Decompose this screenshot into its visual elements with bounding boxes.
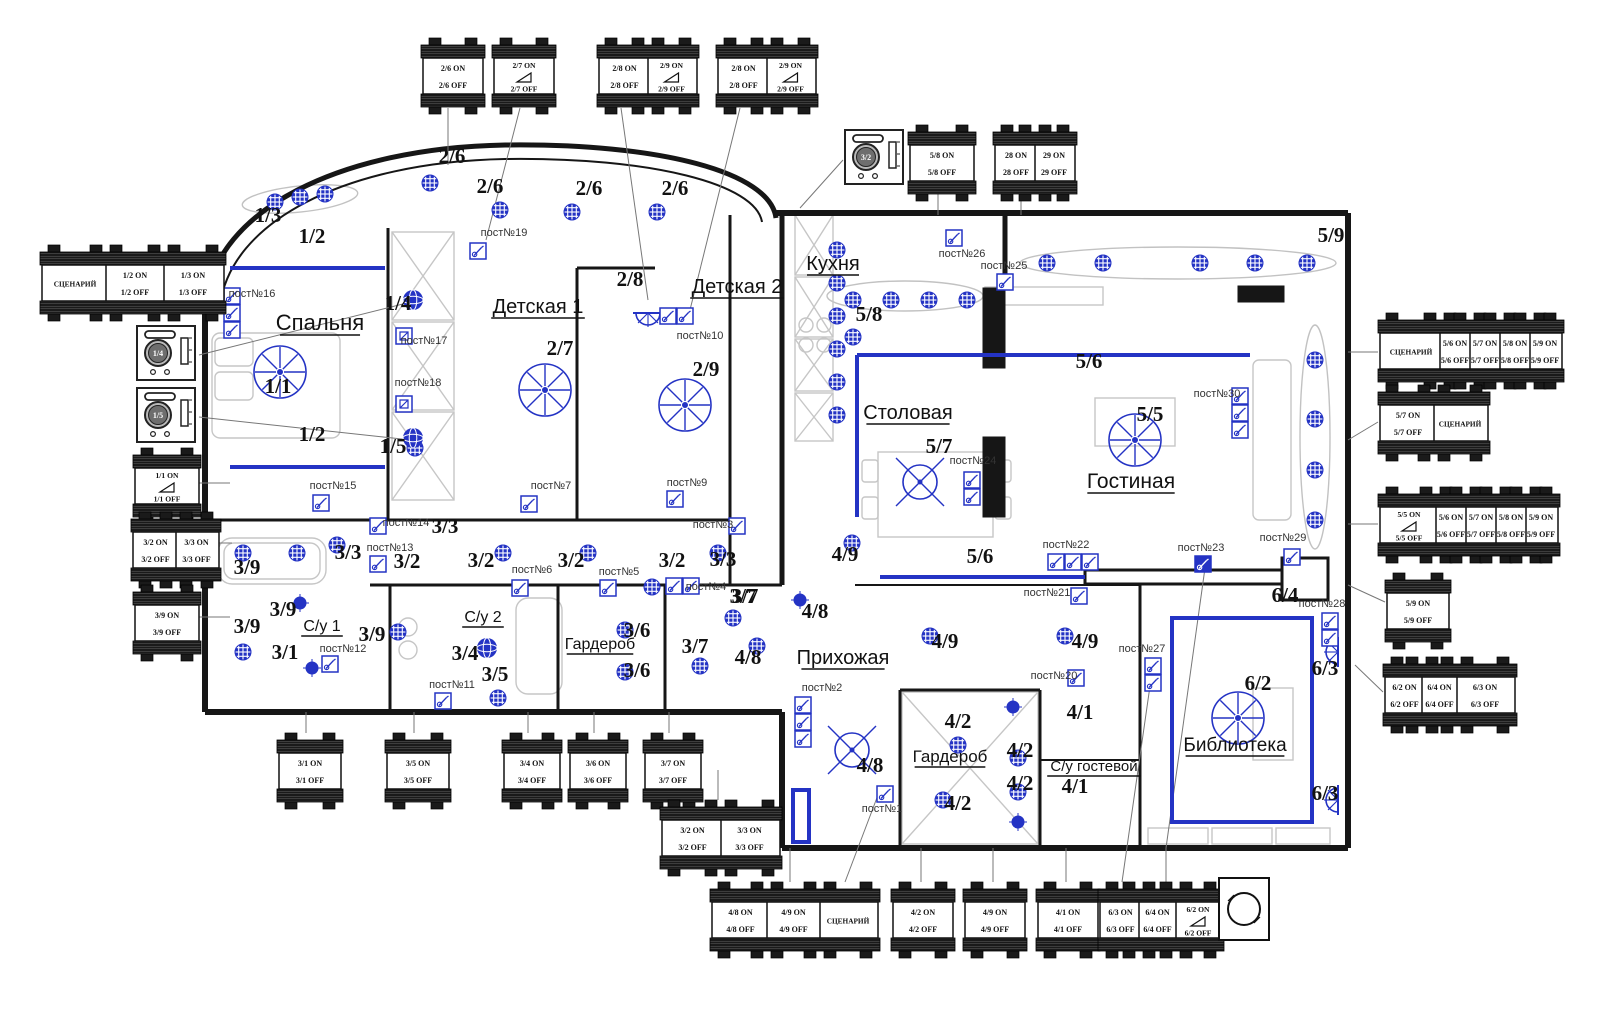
block-bar xyxy=(568,789,628,802)
point-light-icon xyxy=(303,659,321,677)
kitchen-counter-cross xyxy=(795,277,833,337)
gang-label: 4/8 OFF xyxy=(726,925,754,934)
circuit-label: 6/4 xyxy=(1272,583,1299,607)
post-label: пост№5 xyxy=(599,566,640,578)
circuit-label: 6/2 xyxy=(1245,671,1272,695)
switch-block: 2/6 ON2/6 OFF xyxy=(421,38,485,114)
circuit-label: 3/6 xyxy=(624,618,651,642)
bathtub-2 xyxy=(516,598,562,694)
post-label: пост№28 xyxy=(1299,598,1346,610)
gang-label: 6/3 OFF xyxy=(1106,925,1134,934)
spot-light-icon xyxy=(317,186,333,202)
post-label: пост№2 xyxy=(802,682,843,694)
leader-line xyxy=(1348,585,1385,602)
switch-post-symbol xyxy=(1284,549,1300,565)
gang-label: 5/8 OFF xyxy=(1501,356,1529,365)
stove-burner xyxy=(799,338,813,352)
ceiling-light-oval xyxy=(1020,247,1336,279)
sink xyxy=(399,641,417,659)
leader-line xyxy=(1348,422,1378,440)
spot-light-icon xyxy=(829,374,845,390)
gang-label: 4/9 ON xyxy=(983,908,1007,917)
spot-light-icon xyxy=(829,407,845,423)
screw xyxy=(859,174,864,179)
block-bar xyxy=(385,740,451,753)
device-slot xyxy=(145,331,175,338)
leader-line xyxy=(1355,665,1383,692)
switch-block: 3/9 ON3/9 OFF xyxy=(133,585,201,661)
leader-lines xyxy=(193,108,1385,882)
wall-pier xyxy=(983,437,1005,517)
block-bar xyxy=(1098,938,1224,951)
block-bar xyxy=(502,740,562,753)
switch-block: 2/7 ON2/7 OFF xyxy=(492,38,556,114)
device-slot xyxy=(145,393,175,400)
room-label: С/у 1 xyxy=(303,618,340,635)
gang-label: 3/6 ON xyxy=(586,759,610,768)
room-label: С/у 2 xyxy=(464,609,501,626)
gang-label: 5/9 ON xyxy=(1533,339,1557,348)
circuit-label: 3/2 xyxy=(468,548,495,572)
gang-label: 28 ON xyxy=(1005,151,1027,160)
gang-label: СЦЕНАРИЙ xyxy=(1390,348,1433,357)
fan-device-symbol xyxy=(1219,878,1269,940)
switch-post-symbol xyxy=(997,274,1013,290)
spot-light-icon xyxy=(1307,512,1323,528)
gang-label: 5/8 ON xyxy=(930,151,954,160)
gang-label: 1/2 OFF xyxy=(121,288,149,297)
gang-label: 5/6 ON xyxy=(1443,339,1467,348)
dimmer-knob-label: 1/4 xyxy=(153,349,163,358)
spot-light-icon xyxy=(1307,352,1323,368)
chair xyxy=(862,460,878,482)
post-label: пост№19 xyxy=(481,227,528,239)
switch-block: СЦЕНАРИЙ5/6 ON5/6 OFF5/7 ON5/7 OFF5/8 ON… xyxy=(1378,313,1564,389)
gang-label: 6/3 OFF xyxy=(1471,700,1499,709)
circuit-label: 6/3 xyxy=(1312,656,1339,680)
room-label: Детская 1 xyxy=(493,296,584,318)
spot-light-icon xyxy=(564,204,580,220)
gang-label: 2/9 ON xyxy=(660,61,684,70)
spot-light-icon xyxy=(235,644,251,660)
circuit-label: 3/3 xyxy=(432,514,459,538)
rotary-dimmer-device: 1/5 xyxy=(137,388,195,442)
spot-light-icon xyxy=(390,624,406,640)
circuit-label: 4/9 xyxy=(1072,629,1099,653)
switch-block: 6/3 ON6/3 OFF6/4 ON6/4 OFF6/2 ON6/2 OFF xyxy=(1098,882,1224,958)
spot-light-icon xyxy=(829,341,845,357)
block-bar xyxy=(716,45,818,58)
circuit-label: 2/6 xyxy=(477,174,504,198)
tv-wall xyxy=(1085,570,1282,584)
switch-block: 3/1 ON3/1 OFF xyxy=(277,733,343,809)
block-bar xyxy=(568,740,628,753)
rotary-dimmer-device: 1/4 xyxy=(137,326,195,380)
block-bar xyxy=(643,740,703,753)
gang-label: 2/9 ON xyxy=(779,61,803,70)
circuit-label: 2/6 xyxy=(662,176,689,200)
spot-light-icon xyxy=(1192,255,1208,271)
switch-block: 3/2 ON3/2 OFF3/3 ON3/3 OFF xyxy=(131,512,221,588)
switch-block: 28 ON28 OFF29 ON29 OFF xyxy=(993,125,1077,201)
circuit-label: 4/2 xyxy=(1007,738,1034,762)
gang-label: 6/2 OFF xyxy=(1185,929,1212,938)
post-label: пост№15 xyxy=(310,480,357,492)
block-bar xyxy=(891,889,955,902)
gang-label: 3/3 OFF xyxy=(182,555,210,564)
post-label: пост№11 xyxy=(429,679,475,691)
circuit-label: 4/1 xyxy=(1062,774,1089,798)
switch-post-symbol xyxy=(1195,556,1211,572)
gang-label: 28 OFF xyxy=(1003,168,1029,177)
gang-label: СЦЕНАРИЙ xyxy=(1439,420,1482,429)
switch-block: 3/2 ON3/2 OFF3/3 ON3/3 OFF xyxy=(660,800,782,876)
block-bar xyxy=(1383,713,1517,726)
spot-light-icon xyxy=(422,175,438,191)
switch-block: 4/1 ON4/1 OFF xyxy=(1036,882,1100,958)
switch-blocks-layer: 2/6 ON2/6 OFF2/7 ON2/7 OFF2/8 ON2/8 OFF2… xyxy=(40,38,1564,958)
switch-post-symbol xyxy=(1322,613,1338,646)
gang-label: 29 ON xyxy=(1043,151,1065,160)
gang-label: 4/8 ON xyxy=(728,908,752,917)
post-label: пост№6 xyxy=(512,564,553,576)
block-bar xyxy=(133,455,201,468)
circuit-label: 3/7 xyxy=(730,584,757,608)
gang-label: 6/4 ON xyxy=(1145,908,1169,917)
spot-light-icon xyxy=(921,292,937,308)
bookshelf xyxy=(1276,828,1330,844)
gang-label: 2/8 ON xyxy=(612,64,636,73)
gang-label: 5/6 OFF xyxy=(1441,356,1469,365)
rotary-dimmer-device: 3/2 xyxy=(845,130,903,184)
spot-light-icon xyxy=(1307,462,1323,478)
gang-label: 5/8 OFF xyxy=(1497,530,1525,539)
switch-post-symbol xyxy=(877,786,893,802)
screw xyxy=(151,370,156,375)
circuit-label: 4/9 xyxy=(832,542,859,566)
screw xyxy=(165,432,170,437)
gang-label: 4/9 OFF xyxy=(981,925,1009,934)
gang-label: 6/4 ON xyxy=(1427,683,1451,692)
circuit-label: 2/9 xyxy=(693,357,720,381)
gang-label: 6/3 ON xyxy=(1473,683,1497,692)
block-bar xyxy=(421,45,485,58)
switch-block: 3/5 ON3/5 OFF xyxy=(385,733,451,809)
post-label: пост№1 xyxy=(862,803,903,815)
spot-light-icon xyxy=(289,545,305,561)
circuit-label: 5/7 xyxy=(926,434,953,458)
gang-label: 4/1 OFF xyxy=(1054,925,1082,934)
screw xyxy=(151,432,156,437)
post-label: пост№3 xyxy=(693,519,734,531)
circuit-label: 4/8 xyxy=(802,599,829,623)
switch-post-symbol xyxy=(313,495,329,511)
gang-label: 5/5 ON xyxy=(1398,510,1422,519)
bookshelf xyxy=(1148,828,1208,844)
switch-post-symbol xyxy=(435,693,451,709)
spot-light-icon xyxy=(490,690,506,706)
block-bar xyxy=(963,889,1027,902)
circuit-label: 3/9 xyxy=(234,614,261,638)
switch-post-symbol xyxy=(322,656,338,672)
spot-light-icon xyxy=(883,292,899,308)
block-bar xyxy=(660,807,782,820)
leader-line xyxy=(800,160,843,208)
gang-label: 2/9 OFF xyxy=(658,85,685,94)
circuit-label: 3/9 xyxy=(270,597,297,621)
arc-wall-outer xyxy=(206,145,776,302)
switch-post-symbol xyxy=(795,697,811,747)
block-bar xyxy=(1383,664,1517,677)
post-label: пост№13 xyxy=(367,542,414,554)
switch-block: СЦЕНАРИЙ1/2 ON1/2 OFF1/3 ON1/3 OFF xyxy=(40,245,226,321)
spot-light-icon xyxy=(829,275,845,291)
post-label: пост№14 xyxy=(383,517,430,529)
kitchen-counter-cross xyxy=(795,339,833,391)
gang-label: 5/7 OFF xyxy=(1471,356,1499,365)
circuit-label: 6/3 xyxy=(1312,781,1339,805)
block-bar xyxy=(502,789,562,802)
switch-block: 6/2 ON6/2 OFF6/4 ON6/4 OFF6/3 ON6/3 OFF xyxy=(1383,657,1517,733)
spot-light-icon xyxy=(1247,255,1263,271)
switch-post-symbol xyxy=(521,496,537,512)
post-label: пост№4 xyxy=(686,581,727,593)
spot-light-icon xyxy=(292,189,308,205)
gang-label: СЦЕНАРИЙ xyxy=(827,917,870,926)
block-bar xyxy=(492,45,556,58)
block-bar xyxy=(710,938,880,951)
gang-label: 6/2 ON xyxy=(1187,905,1211,914)
gang-label: 3/2 ON xyxy=(143,538,167,547)
room-label: Прихожая xyxy=(797,647,890,669)
gang-label: 5/7 OFF xyxy=(1467,530,1495,539)
switch-post-symbol xyxy=(667,491,683,507)
block-bar xyxy=(891,938,955,951)
gang-label: 4/9 OFF xyxy=(779,925,807,934)
gang-label: 3/4 ON xyxy=(520,759,544,768)
gang-label: 2/7 OFF xyxy=(511,85,538,94)
spot-light-icon xyxy=(1299,255,1315,271)
spot-light-icon xyxy=(845,329,861,345)
switch-block: 5/9 ON5/9 OFF xyxy=(1385,573,1451,649)
circuit-label: 5/6 xyxy=(967,544,994,568)
circuit-label: 4/9 xyxy=(932,629,959,653)
block-bar xyxy=(1098,889,1224,902)
wall-pier xyxy=(1238,286,1284,302)
block-bar xyxy=(716,94,818,107)
block-bar xyxy=(277,740,343,753)
switch-block: 2/8 ON2/8 OFF2/9 ON2/9 OFF xyxy=(716,38,818,114)
circuit-label: 5/9 xyxy=(1318,223,1345,247)
gang-label: 5/7 OFF xyxy=(1394,428,1422,437)
gang-label: 3/1 OFF xyxy=(296,776,324,785)
gang-label: 3/4 OFF xyxy=(518,776,546,785)
block-bar xyxy=(1385,580,1451,593)
gang-label: 3/5 OFF xyxy=(404,776,432,785)
switch-post-symbol xyxy=(964,472,980,505)
room-label: Спальня xyxy=(276,310,364,335)
block-bar xyxy=(133,641,201,654)
block-bar xyxy=(1378,543,1560,556)
block-bar xyxy=(993,181,1077,194)
block-bar xyxy=(908,181,976,194)
block-bar xyxy=(492,94,556,107)
switch-block: 2/8 ON2/8 OFF2/9 ON2/9 OFF xyxy=(597,38,699,114)
gang-label: 2/9 OFF xyxy=(777,85,804,94)
block-bar xyxy=(1378,441,1490,454)
circuit-label: 4/2 xyxy=(1007,771,1034,795)
switch-post-symbol xyxy=(512,580,528,596)
post-label: пост№10 xyxy=(677,330,724,342)
dimmer-knob-label: 3/2 xyxy=(861,153,871,162)
switch-post-symbol xyxy=(1048,554,1098,570)
block-bar xyxy=(1378,392,1490,405)
wall-light-icon xyxy=(633,313,663,327)
gang-label: 1/3 ON xyxy=(181,271,205,280)
switch-post-symbol xyxy=(600,580,616,596)
gang-label: 5/7 ON xyxy=(1469,513,1493,522)
gang-label: 3/1 ON xyxy=(298,759,322,768)
block-bar xyxy=(1385,629,1451,642)
switch-block: 3/4 ON3/4 OFF xyxy=(502,733,562,809)
gang-label: 5/7 ON xyxy=(1396,411,1420,420)
block-bar xyxy=(993,132,1077,145)
screw xyxy=(873,174,878,179)
chandelier-icon xyxy=(659,379,711,431)
circuit-label: 3/9 xyxy=(234,555,261,579)
block-bar xyxy=(908,132,976,145)
circuit-label: 3/2 xyxy=(558,548,585,572)
switch-block: 5/5 ON5/5 OFF5/6 ON5/6 OFF5/7 ON5/7 OFF5… xyxy=(1378,487,1560,563)
block-bar xyxy=(710,889,880,902)
block-bar xyxy=(421,94,485,107)
post-label: пост№25 xyxy=(981,260,1028,272)
gang-label: 2/6 OFF xyxy=(439,81,467,90)
room-label: Библиотека xyxy=(1183,735,1287,756)
gang-label: 5/8 OFF xyxy=(928,168,956,177)
block-bar xyxy=(1036,938,1100,951)
circuit-label: 4/1 xyxy=(1067,700,1094,724)
gang-label: 1/1 ON xyxy=(156,471,180,480)
post-label: пост№7 xyxy=(531,480,572,492)
circuit-label: 4/8 xyxy=(735,645,762,669)
gang-label: 3/3 ON xyxy=(737,826,761,835)
spot-light-icon xyxy=(649,204,665,220)
post-label: пост№18 xyxy=(395,377,442,389)
gang-label: 6/4 OFF xyxy=(1143,925,1171,934)
circuit-label: 1/4 xyxy=(385,291,412,315)
switch-post-symbol xyxy=(370,556,386,572)
spot-light-icon xyxy=(1095,255,1111,271)
gang-label: 6/3 ON xyxy=(1108,908,1132,917)
switch-block: 5/8 ON5/8 OFF xyxy=(908,125,976,201)
gang-label: 29 OFF xyxy=(1041,168,1067,177)
circuit-label: 4/8 xyxy=(857,753,884,777)
gang-label: 4/2 ON xyxy=(911,908,935,917)
block-bar xyxy=(385,789,451,802)
stove-burner xyxy=(817,318,831,332)
gang-label: 3/2 OFF xyxy=(141,555,169,564)
circuit-label: 1/2 xyxy=(299,224,326,248)
block-bar xyxy=(1378,369,1564,382)
switch-block: 4/9 ON4/9 OFF xyxy=(963,882,1027,958)
gang-label: 2/8 OFF xyxy=(610,81,638,90)
circuit-label: 3/2 xyxy=(659,548,686,572)
gang-label: 5/6 ON xyxy=(1439,513,1463,522)
circuit-label: 1/5 xyxy=(380,434,407,458)
post-label: пост№16 xyxy=(229,288,276,300)
dimmer-knob-label: 1/5 xyxy=(153,411,163,420)
switch-post-symbol xyxy=(660,308,693,324)
room-label: С/у гостевой xyxy=(1050,758,1137,775)
room-label: Гардероб xyxy=(913,747,988,766)
circuit-label: 3/5 xyxy=(482,662,509,686)
gang-label: 3/9 ON xyxy=(155,611,179,620)
gang-label: 5/9 ON xyxy=(1529,513,1553,522)
spot-light-icon xyxy=(495,545,511,561)
globe-light-icon xyxy=(477,638,497,658)
room-label: Детская 2 xyxy=(692,276,783,298)
gang-label: 2/8 OFF xyxy=(729,81,757,90)
gang-label: 2/8 ON xyxy=(731,64,755,73)
chandelier-icon xyxy=(519,364,571,416)
circuit-label: 4/2 xyxy=(945,709,972,733)
post-label: пост№24 xyxy=(950,455,997,467)
block-bar xyxy=(963,938,1027,951)
dimmer-slider xyxy=(181,338,188,364)
block-bar xyxy=(131,568,221,581)
circuit-label: 5/6 xyxy=(1076,349,1103,373)
post-label: пост№22 xyxy=(1043,539,1090,551)
post-label: пост№17 xyxy=(401,335,448,347)
room-label: Столовая xyxy=(863,402,952,424)
gang-label: СЦЕНАРИЙ xyxy=(54,280,97,289)
circuit-label: 1/1 xyxy=(265,374,292,398)
spot-light-icon xyxy=(492,202,508,218)
circuit-label: 2/7 xyxy=(547,336,574,360)
switch-post-symbol xyxy=(1145,658,1161,691)
block-bar xyxy=(597,94,699,107)
circuit-label: 2/6 xyxy=(439,144,466,168)
gang-label: 5/8 ON xyxy=(1499,513,1523,522)
switch-block: 5/7 ON5/7 OFFСЦЕНАРИЙ xyxy=(1378,385,1490,461)
switch-post-symbol xyxy=(946,230,962,246)
gang-label: 6/2 ON xyxy=(1392,683,1416,692)
gang-label: 6/2 OFF xyxy=(1390,700,1418,709)
post-label: пост№26 xyxy=(939,248,986,260)
circuit-label: 3/6 xyxy=(624,658,651,682)
block-bar xyxy=(277,789,343,802)
pillow xyxy=(215,338,253,366)
gang-label: 2/7 ON xyxy=(513,61,537,70)
gang-label: 3/9 OFF xyxy=(153,628,181,637)
block-bar xyxy=(597,45,699,58)
gang-label: 5/7 ON xyxy=(1473,339,1497,348)
circuit-label: 3/1 xyxy=(272,640,299,664)
post-label: пост№30 xyxy=(1194,388,1241,400)
spot-light-icon xyxy=(959,292,975,308)
bookshelf xyxy=(1212,828,1272,844)
circuit-label: 3/3 xyxy=(335,540,362,564)
walls-layer xyxy=(205,145,1348,848)
block-bar xyxy=(1378,320,1564,333)
circuit-label: 5/8 xyxy=(856,302,883,326)
gang-label: 5/9 OFF xyxy=(1531,356,1559,365)
post-label: пост№23 xyxy=(1178,542,1225,554)
post-label: пост№29 xyxy=(1260,532,1307,544)
room-label: Кухня xyxy=(806,253,860,275)
gang-label: 5/8 ON xyxy=(1503,339,1527,348)
